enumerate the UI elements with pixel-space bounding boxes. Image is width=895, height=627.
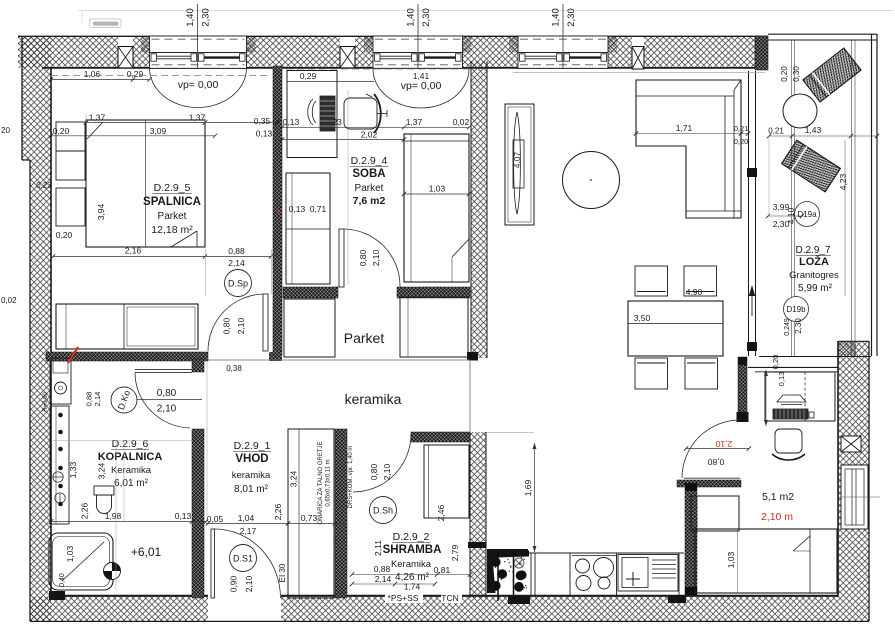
svg-text:0,81: 0,81	[434, 565, 451, 575]
svg-text:1,37: 1,37	[406, 117, 423, 127]
svg-text:0,73: 0,73	[301, 513, 318, 523]
svg-text:3,09: 3,09	[150, 126, 167, 136]
svg-text:0,38: 0,38	[226, 364, 242, 373]
svg-text:R=0,60: R=0,60	[43, 392, 49, 412]
svg-text:D.S1: D.S1	[233, 554, 253, 564]
svg-text:D.2.9_4: D.2.9_4	[351, 155, 388, 167]
svg-text:0,65x0,73x0,11 m: 0,65x0,73x0,11 m	[326, 459, 332, 506]
svg-text:2,16: 2,16	[125, 246, 142, 256]
svg-text:2,30: 2,30	[773, 219, 790, 229]
svg-text:7,6 m2: 7,6 m2	[353, 195, 386, 207]
svg-text:0,40: 0,40	[59, 573, 66, 587]
svg-text:0,13: 0,13	[777, 372, 786, 387]
svg-text:2,10: 2,10	[382, 463, 392, 480]
svg-text:Parket: Parket	[158, 211, 187, 222]
svg-text:2,11: 2,11	[373, 540, 383, 556]
svg-text:0,80: 0,80	[157, 388, 177, 399]
svg-text:0,80: 0,80	[358, 249, 368, 266]
svg-text:3,94: 3,94	[96, 203, 106, 220]
svg-text:LOŽA: LOŽA	[799, 255, 829, 268]
svg-text:vp= 0,00: vp= 0,00	[401, 80, 442, 92]
svg-text:Keramika: Keramika	[391, 559, 432, 570]
svg-text:2,46: 2,46	[436, 504, 446, 521]
svg-text:OMARICA ZA TALNO GRETJE: OMARICA ZA TALNO GRETJE	[318, 441, 324, 524]
svg-text:0,02: 0,02	[453, 117, 470, 127]
svg-text:+6,01: +6,01	[131, 545, 162, 559]
svg-text:0,20: 0,20	[734, 137, 749, 146]
svg-text:2,10: 2,10	[244, 575, 254, 592]
svg-text:D.2.9_5: D.2.9_5	[154, 182, 191, 194]
svg-text:keramika: keramika	[232, 470, 271, 481]
svg-text:4,90: 4,90	[686, 287, 703, 297]
svg-text:0,80: 0,80	[222, 317, 232, 334]
svg-text:2,14: 2,14	[93, 392, 102, 407]
svg-text:D19b: D19b	[786, 305, 806, 314]
svg-text:DRS+KOM. vpr. 1,40 m: DRS+KOM. vpr. 1,40 m	[348, 446, 354, 509]
svg-text:0,23: 0,23	[36, 181, 52, 190]
svg-text:vp= 0,00: vp= 0,00	[178, 79, 219, 91]
svg-text:20: 20	[1, 126, 10, 135]
svg-text:0,20: 0,20	[780, 66, 789, 82]
svg-text:TCN: TCN	[441, 593, 458, 603]
svg-text:1,40: 1,40	[551, 8, 562, 27]
svg-text:0,249: 0,249	[784, 318, 791, 336]
svg-text:VHOD: VHOD	[235, 453, 268, 465]
svg-text:2,10 m: 2,10 m	[761, 511, 793, 523]
svg-text:Granitogres: Granitogres	[789, 270, 839, 281]
svg-text:2,10: 2,10	[371, 249, 381, 266]
svg-text:1,03: 1,03	[429, 184, 446, 194]
svg-text:0,29: 0,29	[300, 71, 317, 81]
svg-text:1,74: 1,74	[404, 582, 421, 592]
svg-text:2,10: 2,10	[715, 439, 732, 449]
svg-text:1,69: 1,69	[523, 479, 533, 496]
svg-text:4,07: 4,07	[512, 151, 522, 168]
svg-text:0,80: 0,80	[369, 463, 379, 480]
svg-text:1,43: 1,43	[805, 125, 822, 135]
svg-text:2,14: 2,14	[228, 258, 245, 268]
svg-text:0,35: 0,35	[254, 116, 271, 126]
svg-text:0,80: 0,80	[707, 457, 724, 467]
svg-text:D.Sh: D.Sh	[373, 506, 393, 516]
svg-text:2,79: 2,79	[450, 544, 460, 561]
svg-text:0,13: 0,13	[256, 129, 273, 139]
svg-text:1,33: 1,33	[68, 461, 78, 478]
svg-text:1,04: 1,04	[238, 513, 255, 523]
svg-text:SOBA: SOBA	[352, 168, 385, 180]
svg-text:Parket: Parket	[344, 330, 385, 346]
svg-text:3,99: 3,99	[773, 202, 790, 212]
svg-text:3,24: 3,24	[289, 470, 299, 487]
svg-text:Parket: Parket	[355, 183, 384, 194]
svg-text:2,30: 2,30	[566, 8, 577, 27]
svg-text:0,13: 0,13	[289, 204, 306, 214]
svg-text:1,37: 1,37	[89, 113, 106, 123]
svg-text:0,71: 0,71	[310, 204, 327, 214]
svg-text:2,10: 2,10	[157, 404, 177, 415]
svg-text:2,30: 2,30	[201, 8, 212, 27]
svg-text:0,20: 0,20	[771, 355, 780, 370]
svg-text:1,37: 1,37	[189, 113, 206, 123]
svg-text:D.2.9_1: D.2.9_1	[234, 440, 271, 452]
svg-text:2,26: 2,26	[80, 502, 90, 519]
svg-text:D.2.9_2: D.2.9_2	[393, 531, 430, 543]
svg-text:EI 30: EI 30	[278, 563, 287, 582]
svg-text:0,30: 0,30	[792, 66, 801, 82]
svg-text:0,20: 0,20	[53, 126, 70, 136]
svg-text:SPALNICA: SPALNICA	[143, 196, 201, 208]
svg-text:1,40: 1,40	[406, 8, 417, 27]
svg-text:5,99 m²: 5,99 m²	[798, 283, 833, 294]
svg-text:2,17: 2,17	[240, 526, 257, 536]
svg-text:0,02: 0,02	[1, 296, 17, 305]
svg-text:1,03: 1,03	[726, 551, 736, 568]
svg-text:D.2.9_7: D.2.9_7	[795, 245, 830, 256]
svg-text:0,20: 0,20	[56, 230, 73, 240]
svg-text:2,14: 2,14	[375, 574, 392, 584]
svg-text:1,06: 1,06	[84, 69, 101, 79]
svg-text:6,01 m²: 6,01 m²	[114, 478, 149, 489]
svg-text:*PS+SS: *PS+SS	[388, 593, 419, 603]
svg-text:2,30: 2,30	[794, 318, 803, 334]
svg-text:2,02: 2,02	[361, 130, 378, 140]
svg-text:0,88: 0,88	[374, 564, 391, 574]
svg-text:,23: ,23	[330, 117, 342, 127]
svg-text:1,98: 1,98	[105, 511, 122, 521]
svg-text:1,40: 1,40	[185, 8, 196, 27]
svg-text:0,88: 0,88	[228, 246, 245, 256]
svg-text:3,24: 3,24	[97, 462, 107, 479]
svg-text:keramika: keramika	[345, 391, 402, 407]
svg-text:5,1 m2: 5,1 m2	[762, 491, 794, 503]
svg-text:3,50: 3,50	[634, 313, 651, 323]
svg-text:0,90: 0,90	[229, 575, 239, 592]
svg-text:1,03: 1,03	[65, 545, 75, 562]
svg-text:D.Sp: D.Sp	[228, 279, 248, 289]
svg-text:0,13: 0,13	[175, 511, 192, 521]
svg-text:KOPALNICA: KOPALNICA	[98, 451, 163, 463]
svg-text:4,23: 4,23	[838, 173, 848, 190]
svg-text:0,13: 0,13	[283, 117, 300, 127]
svg-text:2,30: 2,30	[421, 8, 432, 27]
svg-text:2,10: 2,10	[236, 317, 246, 334]
svg-text:Keramika: Keramika	[111, 465, 152, 476]
svg-text:0,21: 0,21	[734, 124, 749, 133]
svg-text:1,71: 1,71	[676, 123, 693, 133]
svg-text:2,26: 2,26	[273, 503, 283, 520]
svg-text:SHRAMBA: SHRAMBA	[383, 544, 442, 556]
svg-text:8,01 m²: 8,01 m²	[234, 484, 269, 495]
svg-text:D.2.9_6: D.2.9_6	[112, 438, 149, 450]
svg-text:12,18 m²: 12,18 m²	[151, 224, 193, 236]
